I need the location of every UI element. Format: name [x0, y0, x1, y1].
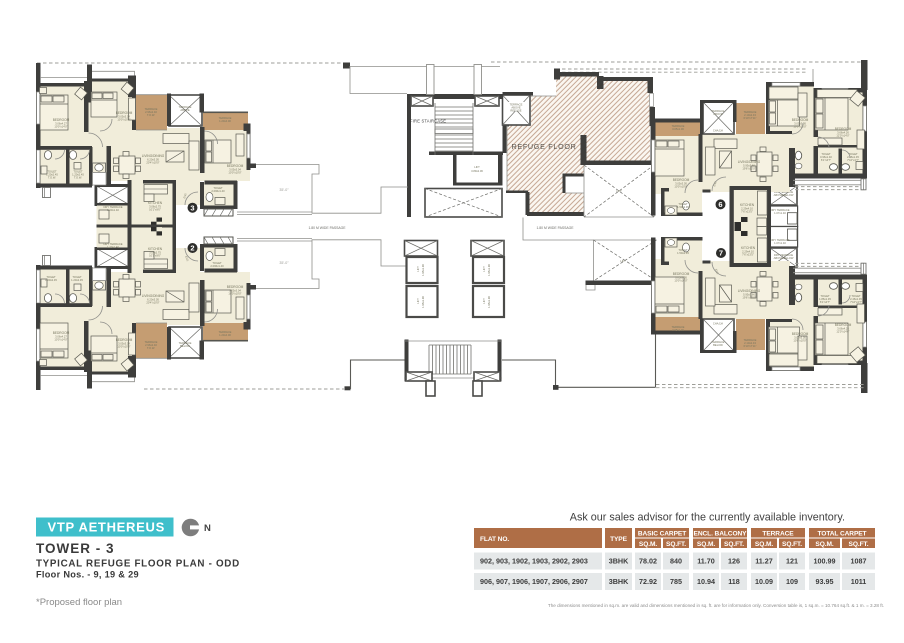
svg-text:10'0"x10'0": 10'0"x10'0": [793, 339, 806, 343]
svg-text:19'6"x12'0": 19'6"x12'0": [742, 296, 755, 300]
svg-text:KITCHEN: KITCHEN: [740, 203, 755, 207]
svg-text:10'1"x9'0": 10'1"x9'0": [149, 254, 161, 258]
svg-text:7: 7: [719, 249, 723, 258]
svg-text:902, 903, 1902, 1903, 2902, 29: 902, 903, 1902, 1903, 2902, 2903: [480, 557, 588, 566]
svg-text:10'0"x10'0": 10'0"x10'0": [117, 118, 130, 122]
svg-text:LIFT: LIFT: [482, 266, 486, 272]
svg-text:1087: 1087: [851, 557, 867, 566]
svg-text:T.O.W.: T.O.W.: [48, 176, 56, 180]
svg-text:7'10"x4'7": 7'10"x4'7": [850, 300, 862, 304]
svg-text:10.94: 10.94: [697, 577, 715, 586]
svg-text:6'1"x4'7": 6'1"x4'7": [820, 300, 830, 304]
svg-text:3.89x2.06: 3.89x2.06: [471, 169, 483, 173]
svg-text:6: 6: [718, 200, 722, 209]
svg-text:T.O.W.: T.O.W.: [74, 176, 82, 180]
svg-text:BEDROOM: BEDROOM: [53, 331, 70, 335]
svg-text:BELOW: BELOW: [713, 343, 723, 347]
svg-text:SQ.M.: SQ.M.: [815, 541, 833, 548]
svg-text:T.O.W.: T.O.W.: [147, 346, 155, 350]
svg-text:1.80 M WIDE PASSAGE: 1.80 M WIDE PASSAGE: [536, 226, 574, 230]
svg-text:2: 2: [190, 244, 194, 253]
svg-text:LIFT: LIFT: [482, 298, 486, 304]
svg-text:LIFT: LIFT: [416, 266, 420, 272]
svg-text:LIFT: LIFT: [416, 298, 420, 304]
svg-text:1.20x2.45: 1.20x2.45: [71, 278, 83, 282]
svg-text:REFUGE FLOOR: REFUGE FLOOR: [511, 142, 576, 151]
svg-text:10'0"x10'0": 10'0"x10'0": [228, 171, 241, 175]
svg-text:118: 118: [728, 577, 740, 586]
svg-text:10'0"x10'0": 10'0"x10'0": [674, 185, 687, 189]
svg-text:BASIC CARPET: BASIC CARPET: [638, 531, 686, 538]
svg-text:10'0"x10'0": 10'0"x10'0": [228, 292, 241, 296]
svg-text:ABOVE/BELOW: ABOVE/BELOW: [774, 256, 794, 260]
svg-text:TOWER - 3: TOWER - 3: [36, 541, 115, 556]
svg-text:35'-0": 35'-0": [279, 188, 289, 192]
svg-text:72.92: 72.92: [639, 577, 657, 586]
svg-text:10'0"x10'0": 10'0"x10'0": [674, 279, 687, 283]
svg-text:1.20x1.40: 1.20x1.40: [107, 245, 119, 249]
svg-text:1.20x4.00: 1.20x4.00: [219, 119, 231, 123]
svg-text:3.05x1.30: 3.05x1.30: [672, 127, 684, 131]
svg-text:10'0"x10'0": 10'0"x10'0": [117, 345, 130, 349]
svg-text:1011: 1011: [851, 577, 867, 586]
svg-text:1.50x2.45: 1.50x2.45: [677, 251, 689, 255]
svg-text:LIVING/DINING: LIVING/DINING: [738, 289, 761, 293]
svg-text:T.O.W.: T.O.W.: [147, 113, 155, 117]
svg-text:LIVING/DINING: LIVING/DINING: [142, 294, 165, 298]
svg-text:REFUGE: REFUGE: [510, 109, 521, 113]
svg-text:Ask our sales advisor for the: Ask our sales advisor for the currently …: [570, 512, 845, 524]
svg-text:VTP AETHEREUS: VTP AETHEREUS: [48, 520, 165, 535]
svg-text:TERRACE: TERRACE: [762, 531, 794, 538]
svg-text:7'10"x4'7": 7'10"x4'7": [847, 158, 859, 162]
svg-text:100.99: 100.99: [814, 557, 836, 566]
svg-text:6'10"x7'11": 6'10"x7'11": [743, 344, 756, 348]
svg-text:35'-0": 35'-0": [279, 261, 289, 265]
svg-text:12'0"x14'0": 12'0"x14'0": [836, 330, 849, 334]
svg-text:1.07x1.40: 1.07x1.40: [774, 211, 786, 215]
svg-text:CHAJJA: CHAJJA: [713, 322, 723, 326]
svg-text:BEDROOM: BEDROOM: [792, 118, 809, 122]
svg-text:1.20x2.45: 1.20x2.45: [45, 278, 57, 282]
svg-text:3.05x1.30: 3.05x1.30: [672, 328, 684, 332]
svg-text:SQ.M.: SQ.M.: [697, 541, 715, 548]
svg-text:KITCHEN: KITCHEN: [148, 247, 163, 251]
svg-text:10'0"x10'0": 10'0"x10'0": [793, 125, 806, 129]
svg-text:12'0"x14'0": 12'0"x14'0": [836, 134, 849, 138]
svg-text:BEDROOM: BEDROOM: [792, 332, 809, 336]
svg-text:10.09: 10.09: [755, 577, 773, 586]
svg-text:840: 840: [670, 557, 682, 566]
svg-text:BEDROOM: BEDROOM: [227, 164, 244, 168]
svg-text:ABOVE: ABOVE: [180, 108, 189, 112]
svg-text:LIFT: LIFT: [616, 189, 622, 193]
svg-text:SQ.FT.: SQ.FT.: [849, 541, 869, 548]
svg-text:19'6"x12'0": 19'6"x12'0": [742, 167, 755, 171]
svg-text:7'6"x13'5": 7'6"x13'5": [742, 253, 754, 257]
svg-text:BEDROOM: BEDROOM: [116, 338, 133, 342]
svg-text:1.20x4.00: 1.20x4.00: [219, 333, 231, 337]
svg-text:SQ.FT.: SQ.FT.: [666, 541, 686, 548]
svg-text:20'4"x10'0": 20'4"x10'0": [146, 301, 159, 305]
svg-text:SQ.FT.: SQ.FT.: [782, 541, 802, 548]
svg-text:93.95: 93.95: [816, 577, 834, 586]
svg-text:10'0"x14'0": 10'0"x14'0": [54, 125, 67, 129]
svg-text:1.95x1.90: 1.95x1.90: [487, 296, 491, 308]
svg-text:ENCL. BALCONY: ENCL. BALCONY: [694, 531, 748, 538]
svg-text:LIVING/DINING: LIVING/DINING: [738, 160, 761, 164]
svg-text:6'1"x4'7": 6'1"x4'7": [821, 158, 831, 162]
svg-text:KITCHEN: KITCHEN: [741, 246, 756, 250]
svg-text:7'6"x13'5": 7'6"x13'5": [741, 210, 753, 214]
svg-text:BEDROOM: BEDROOM: [53, 118, 70, 122]
svg-text:KITCHEN: KITCHEN: [148, 201, 163, 205]
svg-text:SQ.M.: SQ.M.: [755, 541, 773, 548]
svg-text:3: 3: [190, 203, 194, 212]
svg-text:906, 907, 1906, 1907, 2906, 29: 906, 907, 1906, 1907, 2906, 2907: [480, 577, 588, 586]
svg-text:3BHK: 3BHK: [609, 557, 629, 566]
svg-text:BEDROOM: BEDROOM: [673, 178, 690, 182]
svg-text:1.50x2.45: 1.50x2.45: [677, 205, 689, 209]
svg-text:*Proposed floor plan: *Proposed floor plan: [36, 597, 122, 608]
svg-text:126: 126: [728, 557, 740, 566]
svg-text:2.096x1.40: 2.096x1.40: [210, 264, 224, 268]
svg-text:11.70: 11.70: [697, 557, 715, 566]
svg-text:LIFT: LIFT: [620, 259, 626, 263]
svg-text:FLAT NO.: FLAT NO.: [480, 536, 509, 543]
svg-text:N: N: [204, 523, 211, 534]
svg-text:1.95x1.90: 1.95x1.90: [487, 264, 491, 276]
svg-text:10'1"x9'0": 10'1"x9'0": [149, 208, 161, 212]
svg-text:1.20x1.40: 1.20x1.40: [107, 208, 119, 212]
svg-text:BEDROOM: BEDROOM: [673, 272, 690, 276]
svg-text:LIVING/DINING: LIVING/DINING: [142, 154, 165, 158]
svg-text:The dimensions mentioned in sq: The dimensions mentioned in sq.m. are va…: [548, 603, 884, 608]
svg-text:3BHK: 3BHK: [609, 577, 629, 586]
svg-text:SQ.M.: SQ.M.: [639, 541, 657, 548]
svg-text:TYPICAL REFUGE FLOOR PLAN - OD: TYPICAL REFUGE FLOOR PLAN - ODD: [36, 559, 240, 570]
svg-text:BEDROOM: BEDROOM: [835, 323, 852, 327]
svg-text:109: 109: [786, 577, 798, 586]
svg-text:20'4"x10'0": 20'4"x10'0": [146, 161, 159, 165]
svg-text:121: 121: [786, 557, 798, 566]
svg-text:6'10"x7'11": 6'10"x7'11": [743, 116, 756, 120]
svg-text:FIRE STAIRCASE: FIRE STAIRCASE: [410, 119, 446, 124]
svg-text:CHAJJA: CHAJJA: [713, 129, 723, 133]
svg-text:11.27: 11.27: [755, 557, 773, 566]
svg-text:ABOVE: ABOVE: [713, 112, 722, 116]
svg-text:10'0"x14'0": 10'0"x14'0": [54, 338, 67, 342]
svg-text:1.95x1.90: 1.95x1.90: [421, 264, 425, 276]
svg-text:1.80 M WIDE PASSAGE: 1.80 M WIDE PASSAGE: [308, 226, 346, 230]
svg-text:1.95x1.90: 1.95x1.90: [421, 296, 425, 308]
svg-text:785: 785: [670, 577, 682, 586]
svg-text:BEDROOM: BEDROOM: [116, 111, 133, 115]
svg-text:Floor Nos. - 9, 19 & 29: Floor Nos. - 9, 19 & 29: [36, 570, 139, 580]
svg-text:BELOW: BELOW: [180, 344, 190, 348]
svg-text:TOTAL CARPET: TOTAL CARPET: [818, 531, 867, 538]
svg-text:BEDROOM: BEDROOM: [835, 127, 852, 131]
svg-text:TYPE: TYPE: [610, 536, 628, 543]
svg-text:1.07x1.40: 1.07x1.40: [774, 241, 786, 245]
svg-text:78.02: 78.02: [639, 557, 657, 566]
svg-text:LIFT: LIFT: [474, 165, 480, 169]
svg-text:2.096x1.40: 2.096x1.40: [211, 189, 225, 193]
svg-text:SQ.FT.: SQ.FT.: [724, 541, 744, 548]
svg-text:ABOVE/BELOW: ABOVE/BELOW: [774, 193, 794, 197]
svg-text:BEDROOM: BEDROOM: [227, 285, 244, 289]
